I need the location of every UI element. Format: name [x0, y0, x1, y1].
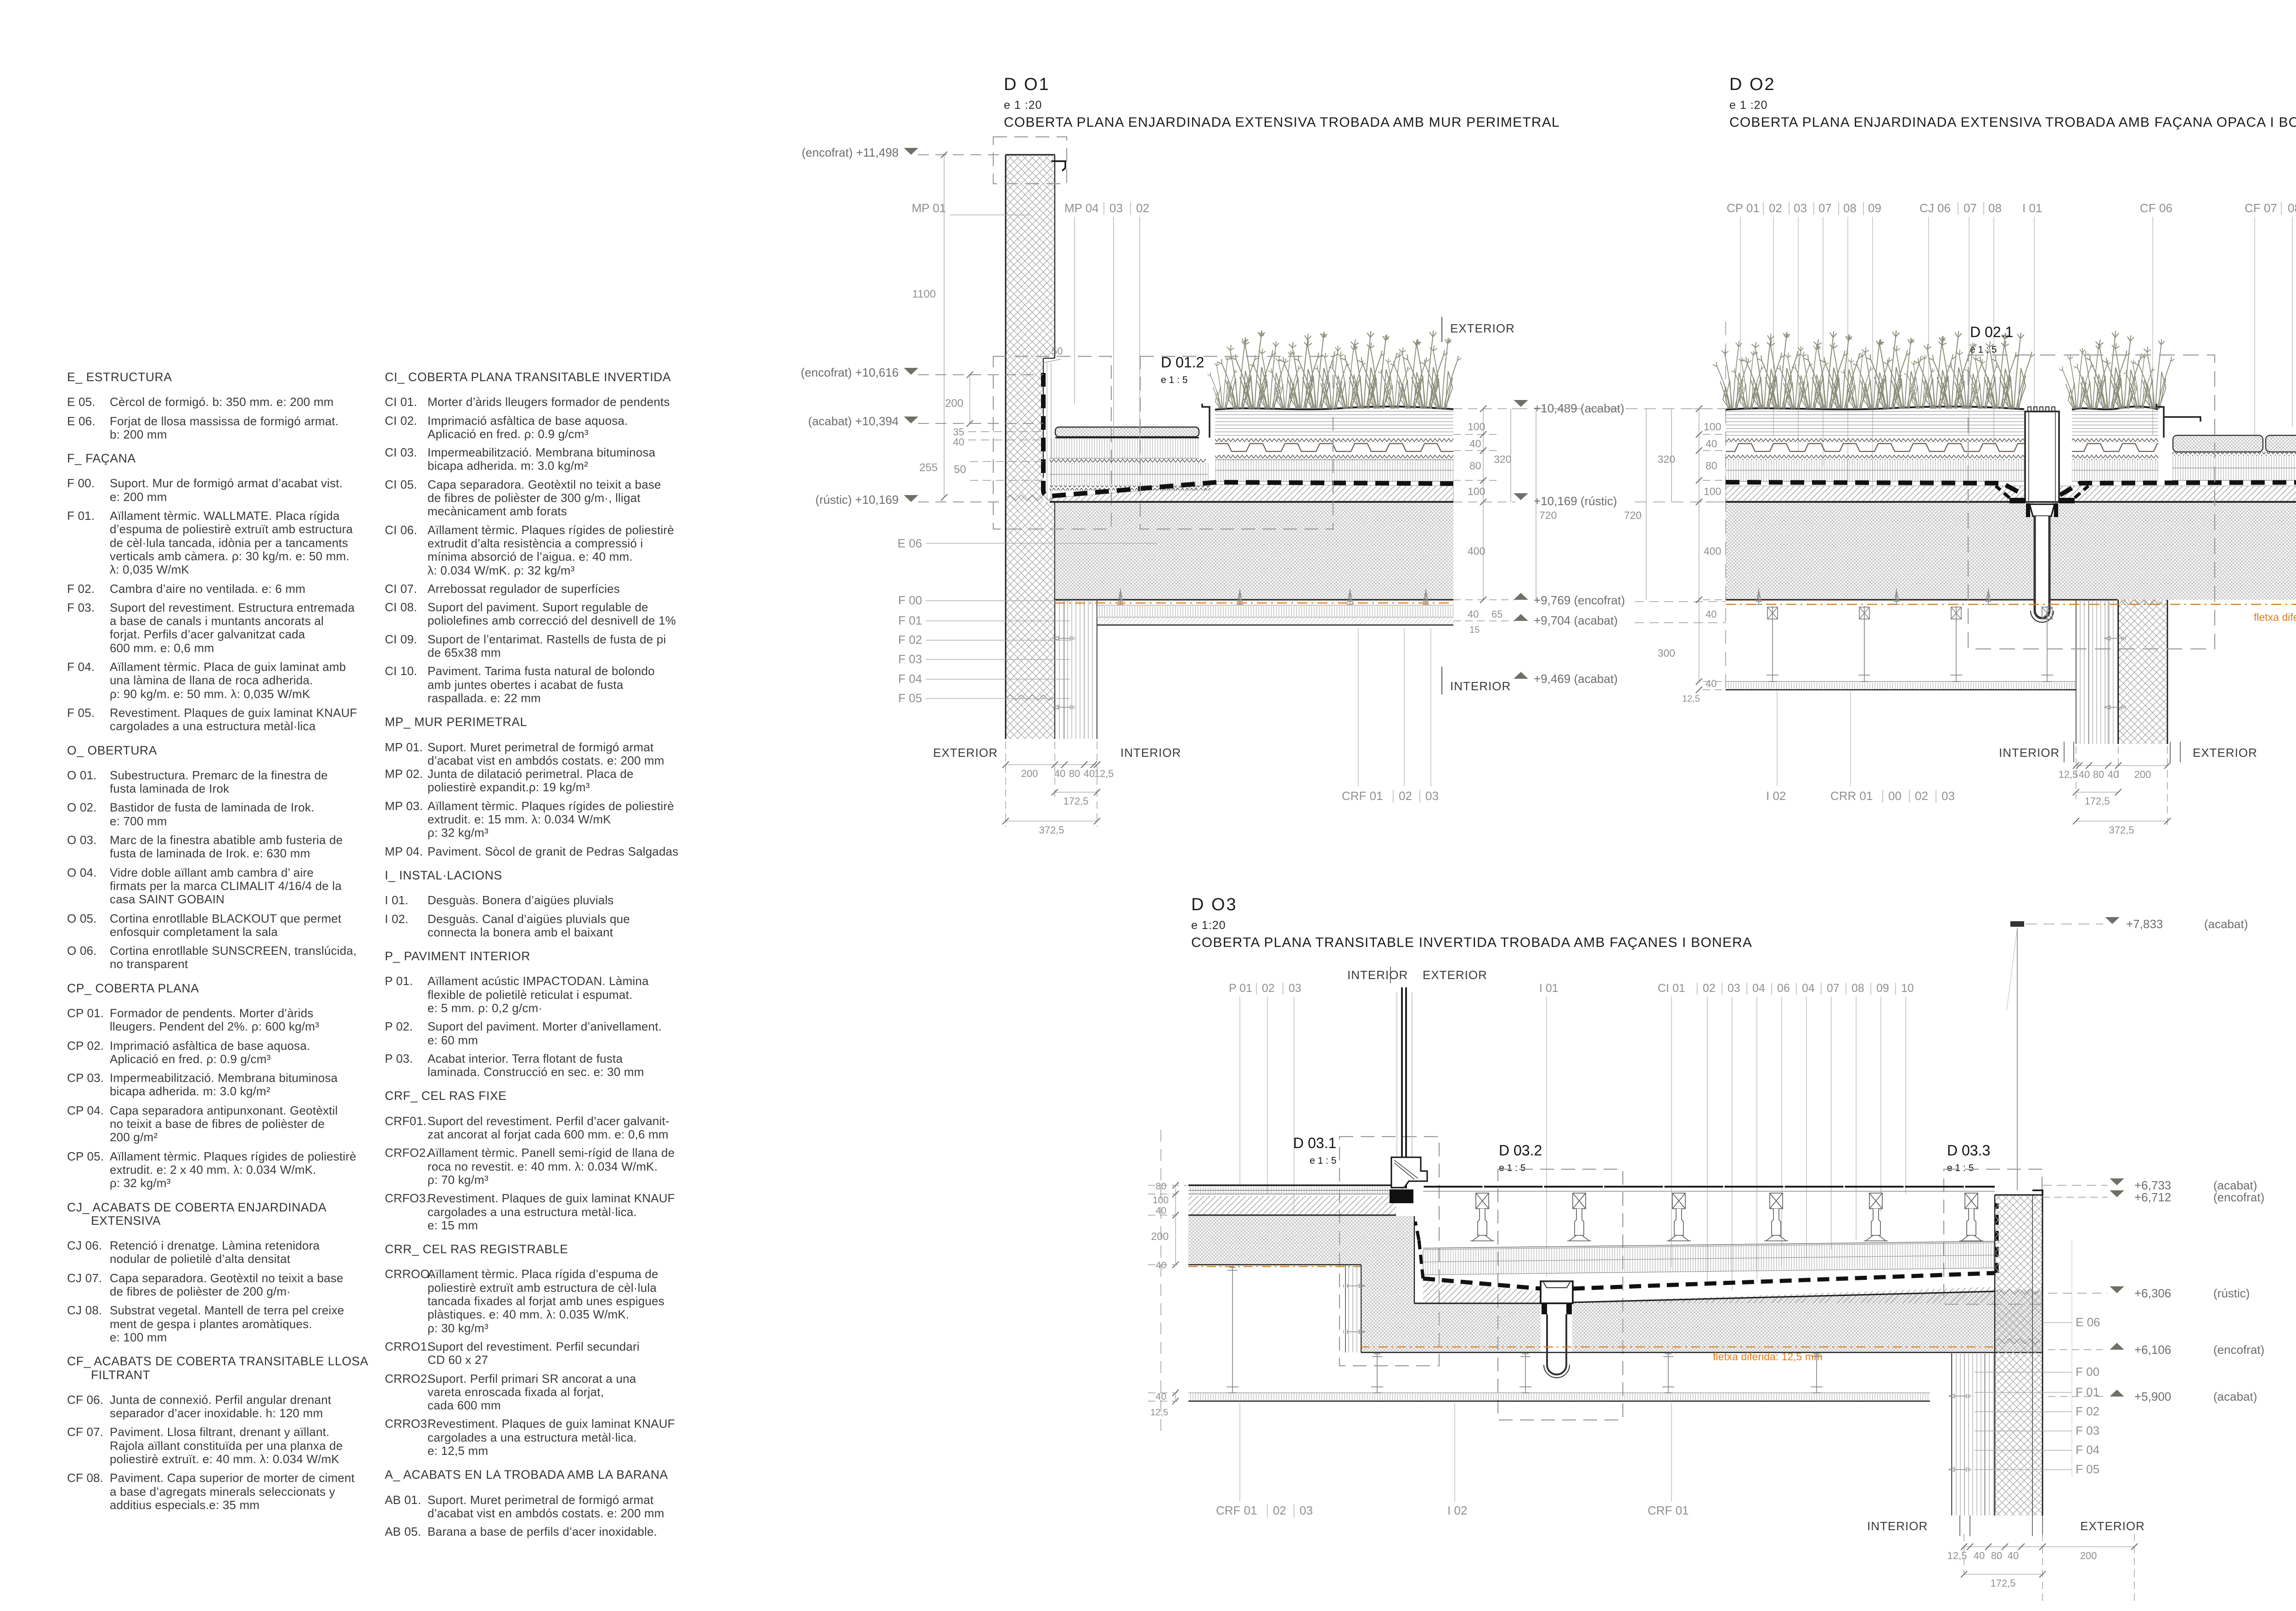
svg-text:INTERIOR: INTERIOR [1867, 1519, 1928, 1533]
svg-text:F 05: F 05 [2076, 1462, 2099, 1476]
svg-text:02: 02 [1136, 201, 1149, 215]
svg-text:EXTERIOR: EXTERIOR [1423, 968, 1487, 982]
svg-text:D 02.1: D 02.1 [1970, 324, 2013, 340]
svg-text:320: 320 [1494, 453, 1511, 465]
svg-text:D 03.1: D 03.1 [1293, 1135, 1336, 1151]
svg-text:D 03.2: D 03.2 [1499, 1142, 1542, 1159]
svg-text:F 02: F 02 [2076, 1404, 2099, 1418]
svg-text:(encofrat) +11,498: (encofrat) +11,498 [802, 146, 899, 159]
svg-text:03: 03 [1109, 201, 1123, 215]
svg-text:E 06: E 06 [898, 536, 923, 550]
svg-text:e 1 :20: e 1 :20 [1004, 99, 1042, 112]
svg-text:40: 40 [953, 436, 964, 448]
svg-text:40: 40 [1468, 608, 1479, 620]
svg-text:100: 100 [1704, 485, 1721, 497]
svg-text:02: 02 [1273, 1504, 1286, 1517]
svg-text:+6,106: +6,106 [2134, 1343, 2171, 1357]
svg-text:07: 07 [1827, 982, 1840, 995]
svg-text:I 02: I 02 [1447, 1504, 1467, 1517]
svg-text:e 1 : 5: e 1 : 5 [1499, 1163, 1525, 1173]
svg-text:EXTERIOR: EXTERIOR [2080, 1519, 2145, 1533]
svg-text:100: 100 [1468, 421, 1485, 433]
svg-text:E 06: E 06 [2076, 1315, 2100, 1329]
svg-text:CRF 01: CRF 01 [1216, 1504, 1257, 1517]
svg-text:D 03.3: D 03.3 [1947, 1142, 1990, 1159]
svg-text:F 00: F 00 [898, 593, 922, 607]
svg-text:COBERTA PLANA TRANSITABLE INVE: COBERTA PLANA TRANSITABLE INVERTIDA TROB… [1191, 935, 1752, 950]
svg-text:CP 01: CP 01 [1727, 201, 1760, 215]
svg-text:02: 02 [1769, 201, 1782, 215]
svg-text:80: 80 [1705, 460, 1717, 472]
svg-text:fletxa diferida: 12,5 mm: fletxa diferida: 12,5 mm [1713, 1351, 1823, 1363]
svg-text:50: 50 [954, 463, 966, 476]
svg-text:+10,489 (acabat): +10,489 (acabat) [1534, 401, 1624, 415]
svg-text:I 02: I 02 [1766, 789, 1786, 803]
svg-text:INTERIOR: INTERIOR [1347, 968, 1408, 982]
svg-text:+6,712: +6,712 [2134, 1190, 2171, 1204]
svg-text:MP 04: MP 04 [1064, 201, 1099, 215]
svg-text:80: 80 [1069, 768, 1080, 779]
svg-text:09: 09 [1876, 982, 1889, 995]
svg-text:+7,833: +7,833 [2126, 917, 2163, 931]
svg-text:255: 255 [919, 462, 938, 474]
svg-text:80: 80 [2093, 769, 2104, 780]
svg-text:200: 200 [2134, 769, 2151, 780]
svg-text:F 04: F 04 [2076, 1443, 2099, 1457]
svg-text:200: 200 [945, 397, 963, 410]
svg-text:40: 40 [1054, 768, 1065, 779]
svg-text:300: 300 [1658, 647, 1675, 659]
svg-text:F 02: F 02 [898, 633, 922, 647]
svg-text:40: 40 [1974, 1550, 1985, 1561]
svg-text:200: 200 [1021, 768, 1038, 779]
svg-text:08: 08 [1988, 201, 2002, 215]
svg-text:04: 04 [1802, 982, 1815, 995]
svg-text:03: 03 [1425, 789, 1439, 803]
svg-text:e 1 :20: e 1 :20 [1729, 99, 1767, 112]
svg-text:100: 100 [1704, 421, 1721, 433]
svg-text:40: 40 [1469, 438, 1481, 450]
svg-text:40: 40 [2108, 769, 2119, 780]
svg-text:I 01: I 01 [2022, 201, 2042, 215]
svg-text:09: 09 [1868, 201, 1881, 215]
svg-text:07: 07 [1818, 201, 1832, 215]
svg-text:02: 02 [1703, 982, 1716, 995]
svg-text:EXTERIOR: EXTERIOR [2193, 746, 2257, 760]
svg-text:40: 40 [1705, 608, 1716, 620]
svg-text:CF 06: CF 06 [2140, 201, 2172, 215]
svg-text:320: 320 [1658, 453, 1675, 465]
svg-text:MP 01: MP 01 [912, 201, 946, 215]
svg-text:12,5: 12,5 [1947, 1550, 1967, 1561]
svg-text:INTERIOR: INTERIOR [1999, 746, 2060, 760]
svg-text:172,5: 172,5 [2084, 795, 2110, 807]
svg-text:10: 10 [1901, 982, 1914, 995]
svg-text:03: 03 [1289, 982, 1301, 995]
svg-text:08: 08 [2288, 201, 2296, 215]
svg-text:+5,900: +5,900 [2134, 1390, 2171, 1403]
svg-text:08: 08 [1843, 201, 1857, 215]
svg-text:D O3: D O3 [1191, 895, 1238, 914]
svg-text:372,5: 372,5 [1039, 824, 1064, 836]
svg-text:(encofrat): (encofrat) [2213, 1343, 2264, 1357]
svg-text:e 1 : 5: e 1 : 5 [1310, 1155, 1336, 1166]
svg-text:CRF 01: CRF 01 [1342, 789, 1383, 803]
svg-text:40: 40 [1084, 768, 1095, 779]
svg-text:02: 02 [1399, 789, 1412, 803]
svg-text:80: 80 [1991, 1550, 2002, 1561]
svg-text:F 04: F 04 [898, 672, 922, 686]
svg-text:02: 02 [1915, 789, 1928, 803]
svg-text:F 05: F 05 [898, 691, 922, 705]
svg-text:400: 400 [1468, 545, 1485, 557]
svg-text:40: 40 [2079, 769, 2090, 780]
svg-text:12,5: 12,5 [1150, 1408, 1168, 1418]
svg-text:INTERIOR: INTERIOR [1450, 679, 1511, 693]
svg-text:50: 50 [1052, 345, 1063, 357]
svg-text:40: 40 [1705, 678, 1716, 689]
svg-text:03: 03 [1794, 201, 1807, 215]
svg-text:CJ 06: CJ 06 [1919, 201, 1951, 215]
svg-text:12,5: 12,5 [1682, 694, 1700, 704]
svg-text:F 03: F 03 [898, 652, 922, 666]
svg-text:08: 08 [1851, 982, 1864, 995]
svg-text:e 1:20: e 1:20 [1191, 919, 1226, 932]
svg-text:40: 40 [1705, 438, 1717, 450]
svg-text:1100: 1100 [912, 288, 936, 300]
svg-text:(acabat): (acabat) [2204, 917, 2248, 931]
svg-text:+9,704 (acabat): +9,704 (acabat) [1534, 614, 1618, 627]
svg-text:172,5: 172,5 [1063, 795, 1088, 807]
svg-text:CF 07: CF 07 [2245, 201, 2277, 215]
svg-text:(encofrat) +10,616: (encofrat) +10,616 [801, 366, 899, 379]
svg-text:07: 07 [1964, 201, 1977, 215]
svg-text:COBERTA PLANA ENJARDINADA EXTE: COBERTA PLANA ENJARDINADA EXTENSIVA TROB… [1729, 115, 2296, 130]
svg-text:I 01: I 01 [1539, 982, 1559, 995]
svg-text:+9,769 (encofrat): +9,769 (encofrat) [1534, 593, 1625, 607]
svg-text:D O2: D O2 [1729, 75, 1776, 94]
svg-text:EXTERIOR: EXTERIOR [1450, 321, 1515, 335]
svg-text:200: 200 [2080, 1550, 2097, 1561]
svg-text:fletxa diferida: 12,5 mm: fletxa diferida: 12,5 mm [2254, 611, 2296, 623]
svg-text:EXTERIOR: EXTERIOR [933, 746, 998, 760]
svg-text:COBERTA PLANA ENJARDINADA EXTE: COBERTA PLANA ENJARDINADA EXTENSIVA TROB… [1004, 115, 1560, 130]
svg-text:40: 40 [2008, 1550, 2019, 1561]
svg-text:03: 03 [1941, 789, 1955, 803]
svg-text:15: 15 [1469, 625, 1480, 635]
svg-text:200: 200 [1151, 1230, 1169, 1242]
svg-text:03: 03 [1300, 1504, 1313, 1517]
svg-text:CI 01: CI 01 [1658, 982, 1685, 995]
svg-text:INTERIOR: INTERIOR [1120, 746, 1181, 760]
svg-text:(encofrat): (encofrat) [2213, 1190, 2264, 1204]
svg-text:06: 06 [1777, 982, 1790, 995]
svg-text:720: 720 [1624, 509, 1642, 521]
svg-text:02: 02 [1262, 982, 1275, 995]
svg-text:+6,306: +6,306 [2134, 1286, 2171, 1300]
svg-text:+9,469 (acabat): +9,469 (acabat) [1534, 672, 1618, 686]
svg-text:F 00: F 00 [2076, 1365, 2099, 1379]
svg-text:03: 03 [1728, 982, 1740, 995]
svg-text:F 03: F 03 [2076, 1424, 2099, 1437]
svg-text:80: 80 [1469, 460, 1481, 472]
svg-text:(acabat): (acabat) [2213, 1390, 2257, 1403]
svg-text:CRR 01: CRR 01 [1830, 789, 1873, 803]
svg-text:12,5: 12,5 [2059, 769, 2078, 780]
svg-text:(rústic) +10,169: (rústic) +10,169 [816, 493, 899, 507]
svg-text:400: 400 [1704, 545, 1721, 557]
svg-text:F 01: F 01 [898, 614, 922, 627]
svg-text:172,5: 172,5 [1990, 1577, 2015, 1589]
svg-text:(acabat) +10,394: (acabat) +10,394 [808, 414, 899, 428]
svg-text:e 1 : 5: e 1 : 5 [1970, 344, 1997, 355]
svg-text:720: 720 [1539, 509, 1557, 521]
svg-text:100: 100 [1468, 485, 1485, 497]
svg-text:D O1: D O1 [1004, 75, 1050, 94]
svg-text:04: 04 [1752, 982, 1765, 995]
svg-text:e 1 : 5: e 1 : 5 [1161, 375, 1187, 385]
svg-text:e 1 : 5: e 1 : 5 [1947, 1163, 1974, 1173]
svg-text:P 01: P 01 [1229, 982, 1252, 995]
svg-text:12,5: 12,5 [1094, 768, 1114, 779]
svg-text:372,5: 372,5 [2109, 824, 2134, 836]
svg-text:65: 65 [1491, 608, 1503, 620]
svg-text:(rústic): (rústic) [2213, 1286, 2250, 1300]
svg-text:+10,169 (rústic): +10,169 (rústic) [1534, 494, 1617, 508]
svg-text:CRF 01: CRF 01 [1648, 1504, 1689, 1517]
svg-text:00: 00 [1888, 789, 1902, 803]
